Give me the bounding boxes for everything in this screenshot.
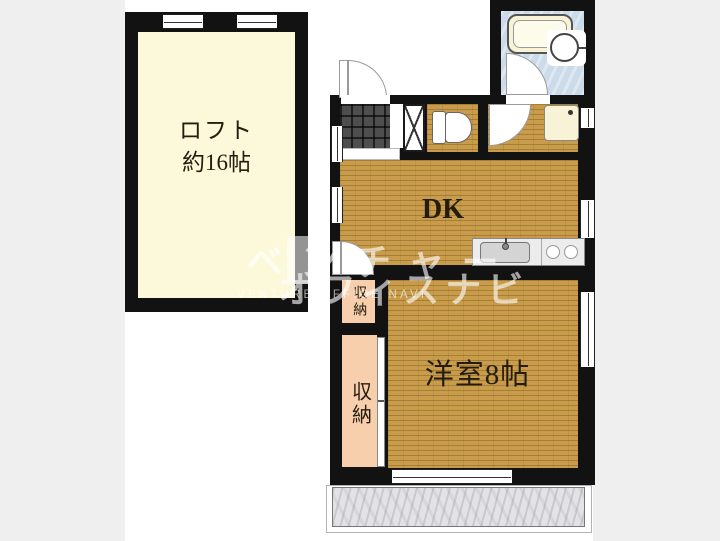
stove-burner-icon [564, 245, 578, 259]
washroom-window-icon [580, 108, 595, 128]
floor-plan-image: ロフト 約16帖 DK 収納 収納 洋室8帖 [0, 0, 720, 541]
closet-sliding-door-handle-icon [378, 400, 384, 402]
bedroom-window-icon [392, 469, 512, 484]
dk-label: DK [398, 195, 488, 226]
loft-window-icon [163, 14, 203, 29]
loft-window-icon [237, 14, 277, 29]
genkan-tile-floor [340, 104, 390, 148]
closet-lower-label: 収納 [342, 368, 377, 440]
closet-sliding-door-icon [377, 337, 385, 467]
washing-machine-drain-icon [568, 110, 573, 115]
bath-sink-tap-icon [579, 47, 586, 49]
washing-machine-icon [544, 105, 579, 141]
entry-alcove [390, 104, 403, 148]
bedroom-right-window-icon [580, 292, 595, 367]
loft-name-label: ロフト [138, 118, 295, 143]
genkan-step [340, 148, 400, 160]
entrance-door-leaf-icon [339, 60, 348, 98]
balcony [332, 487, 585, 527]
dk-right-window-icon [580, 200, 595, 238]
stove-burner-icon [546, 245, 560, 259]
counter-divider [541, 239, 542, 265]
bedroom-label: 洋室8帖 [380, 360, 575, 392]
dk-left-window-icon [331, 126, 343, 162]
watermark-brand-line3: VENTURE OFFICE NAVI [237, 289, 427, 301]
dk-left-window2-icon [331, 187, 343, 223]
toilet-tank-icon [432, 111, 446, 144]
pipe-shaft-icon [403, 104, 425, 152]
bath-sink-icon [550, 33, 579, 62]
watermark-brand-line2: オフィスナビ [278, 261, 529, 313]
loft-size-label: 約16帖 [138, 150, 295, 175]
